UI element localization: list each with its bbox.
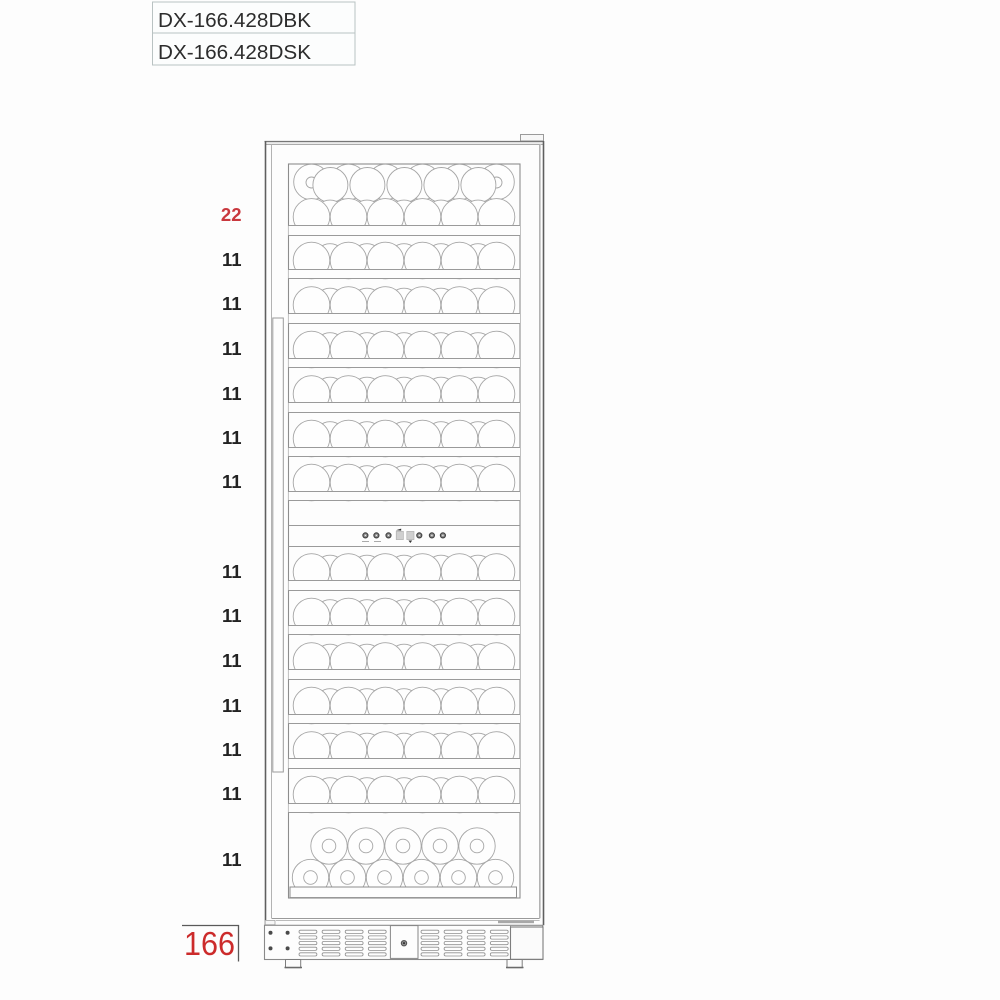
svg-text:11: 11 bbox=[222, 695, 242, 716]
svg-text:22: 22 bbox=[221, 204, 242, 225]
svg-text:DX-166.428DSK: DX-166.428DSK bbox=[158, 41, 311, 64]
svg-text:11: 11 bbox=[222, 427, 242, 448]
svg-text:166: 166 bbox=[184, 925, 235, 962]
svg-text:11: 11 bbox=[222, 605, 242, 626]
svg-text:11: 11 bbox=[222, 383, 242, 404]
svg-text:11: 11 bbox=[222, 783, 242, 804]
svg-text:11: 11 bbox=[222, 561, 242, 582]
svg-text:11: 11 bbox=[222, 471, 242, 492]
svg-text:11: 11 bbox=[222, 249, 242, 270]
svg-text:11: 11 bbox=[222, 739, 242, 760]
svg-text:11: 11 bbox=[222, 650, 242, 671]
svg-text:11: 11 bbox=[222, 338, 242, 359]
svg-text:DX-166.428DBK: DX-166.428DBK bbox=[158, 9, 311, 32]
svg-text:11: 11 bbox=[222, 293, 242, 314]
svg-text:11: 11 bbox=[222, 849, 242, 870]
